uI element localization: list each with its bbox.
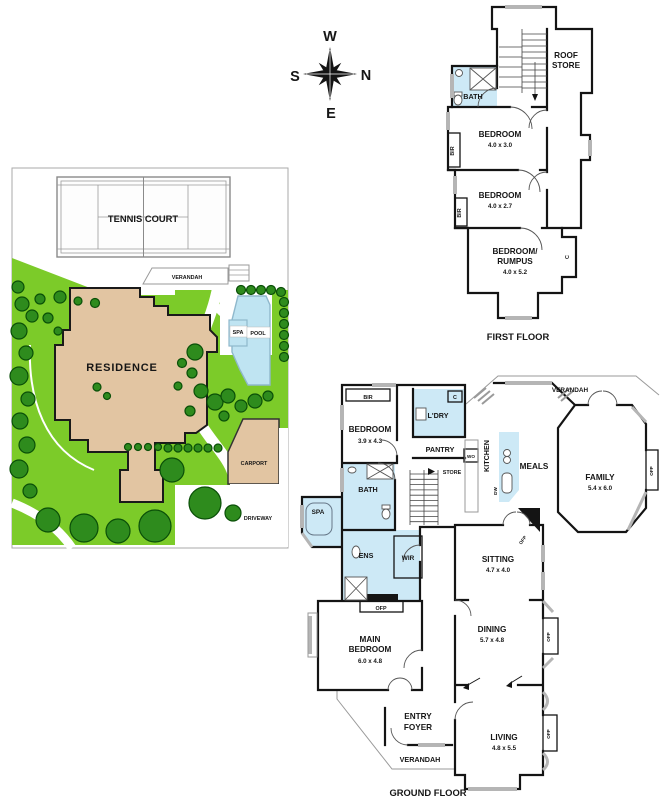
ff-rumpus-label-1: BEDROOM/ — [492, 247, 538, 256]
main-bedroom-dims: 6.0 x 4.8 — [358, 658, 383, 665]
site-pool-label: POOL — [250, 331, 266, 337]
ff-bir2-label: BIR — [457, 208, 463, 217]
main-bedroom-label-2: BEDROOM — [349, 645, 392, 654]
gf-verandah-bottom-label: VERANDAH — [400, 755, 441, 764]
laundry-label: L'DRY — [427, 411, 448, 420]
gf-verandah-top-label: VERANDAH — [552, 387, 589, 394]
main-bedroom-label-1: MAIN — [360, 635, 381, 644]
first-floor-plan: ROOF STORE BATH BEDROOM 4.0 x 3.0 BEDROO… — [448, 7, 592, 342]
wir-label: WIR — [402, 555, 415, 562]
tennis-court: TENNIS COURT — [57, 177, 230, 257]
dining-ofp-label: OFP — [546, 632, 551, 641]
roof-store-label-1: ROOF — [554, 51, 578, 60]
dining-dims: 5.7 x 4.8 — [480, 637, 505, 644]
carport-label: CARPORT — [241, 461, 268, 467]
living-label: LIVING — [490, 733, 517, 742]
sitting-label: SITTING — [482, 555, 514, 564]
gf-spa-label: SPA — [312, 509, 325, 516]
ff-bedroom2-label: BEDROOM — [479, 191, 522, 200]
entry-label-1: ENTRY — [404, 712, 432, 721]
main-bedroom-ofp-label: OFP — [375, 606, 386, 612]
ff-bath-label: BATH — [463, 92, 482, 101]
site-plan: TENNIS COURT VERANDAH SPA POOL RESIDENCE — [10, 168, 289, 548]
residence-label: RESIDENCE — [86, 362, 157, 374]
floorplan-page: W N S E — [0, 0, 662, 800]
compass-north-label: N — [361, 68, 371, 84]
living-ofp-label: OFP — [546, 729, 551, 738]
ff-bedroom1-dims: 4.0 x 3.0 — [488, 142, 513, 149]
entry-label-2: FOYER — [404, 723, 432, 732]
ensuite-label: ENS — [359, 551, 374, 560]
gf-bedroom-label: BEDROOM — [349, 425, 392, 434]
main-bedroom-fireplace-bar — [365, 594, 398, 601]
family-dims: 5.4 x 6.0 — [588, 485, 613, 492]
first-floor-title: FIRST FLOOR — [487, 331, 550, 342]
meals-label: MEALS — [520, 462, 549, 471]
floorplan-drawing: W N S E — [0, 0, 662, 800]
family-ofp-label: OFP — [649, 466, 654, 475]
pantry-label: PANTRY — [426, 445, 455, 454]
kitchen-bench — [465, 440, 478, 512]
gf-bir-label: BIR — [363, 395, 372, 401]
gf-cupboard-label: C — [453, 395, 457, 401]
driveway-label: DRIVEWAY — [244, 516, 273, 522]
ff-cupboard-label: C — [565, 255, 571, 259]
ground-floor-title: GROUND FLOOR — [389, 787, 466, 798]
ff-rumpus-label-2: RUMPUS — [497, 257, 533, 266]
site-verandah-label: VERANDAH — [172, 275, 203, 281]
gf-bath-label: BATH — [358, 485, 377, 494]
kitchen-label: KITCHEN — [482, 440, 491, 472]
compass-rose: W N S E — [290, 29, 371, 122]
store-label: STORE — [443, 470, 462, 476]
ground-floor-plan: BIR BEDROOM 3.9 x 4.3 L'DRY C PANTRY WO … — [302, 376, 659, 798]
roof-store-label-2: STORE — [552, 61, 581, 70]
sitting-ofp-label: OFP — [518, 535, 528, 546]
ff-rumpus-dims: 4.0 x 5.2 — [503, 269, 528, 276]
site-verandah: VERANDAH — [143, 265, 249, 284]
gf-stairs — [410, 470, 438, 525]
dining-label: DINING — [478, 625, 507, 634]
compass-west-label: W — [323, 29, 337, 45]
dishwasher-label: DW — [493, 487, 498, 495]
living-dims: 4.8 x 5.5 — [492, 745, 517, 752]
ff-bedroom1-label: BEDROOM — [479, 130, 522, 139]
gf-bedroom-dims: 3.9 x 4.3 — [358, 438, 383, 445]
first-floor-stairs — [499, 29, 547, 101]
tennis-court-label: TENNIS COURT — [108, 213, 179, 224]
family-label: FAMILY — [585, 473, 615, 482]
sitting-dims: 4.7 x 4.0 — [486, 567, 511, 574]
compass-east-label: E — [326, 106, 336, 122]
compass-south-label: S — [290, 69, 300, 85]
site-spa-label: SPA — [233, 330, 244, 336]
wall-oven-label: WO — [467, 454, 475, 459]
ff-bir1-label: BIR — [450, 146, 456, 155]
ff-bedroom2-dims: 4.0 x 2.7 — [488, 203, 513, 210]
laundry-machine — [416, 408, 426, 420]
